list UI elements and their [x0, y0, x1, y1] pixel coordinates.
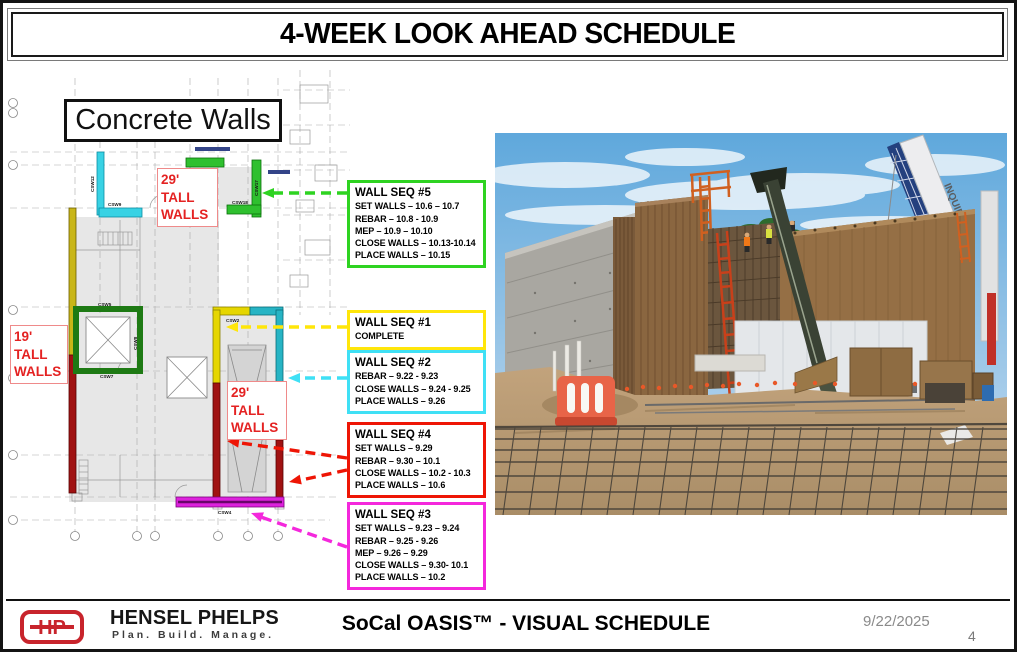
callout-line: CLOSE WALLS – 9.24 - 9.25	[355, 383, 479, 395]
wall-yellow-vert	[213, 310, 220, 383]
callout-line: REBAR – 9.22 - 9.23	[355, 370, 479, 382]
wall-mid-red	[213, 383, 220, 502]
callout-wall-seq-2: WALL SEQ #2 REBAR – 9.22 - 9.23CLOSE WAL…	[347, 350, 486, 414]
traffic-barrier	[555, 376, 617, 426]
callout-title: WALL SEQ #2	[355, 356, 479, 370]
callout-title: WALL SEQ #3	[355, 508, 479, 522]
wall-left-red	[69, 355, 76, 493]
callout-lines: REBAR – 9.22 - 9.23CLOSE WALLS – 9.24 - …	[355, 370, 479, 406]
arrow-seq2-head	[288, 373, 300, 383]
callout-line: SET WALLS – 9.29	[355, 442, 479, 454]
tag-csw4: CSW4	[218, 510, 232, 515]
callout-title: WALL SEQ #1	[355, 316, 479, 330]
callout-line: REBAR – 10.8 - 10.9	[355, 213, 479, 225]
callout-lines: SET WALLS – 9.23 – 9.24REBAR – 9.25 - 9.…	[355, 522, 479, 583]
page-number: 4	[968, 628, 976, 644]
company-tagline: Plan. Build. Manage.	[112, 629, 274, 641]
title-bar: 4-WEEK LOOK AHEAD SCHEDULE	[7, 8, 1008, 61]
arrow-seq5-head	[262, 188, 274, 198]
title-bar-inner: 4-WEEK LOOK AHEAD SCHEDULE	[11, 12, 1004, 57]
callout-wall-seq-5: WALL SEQ #5 SET WALLS – 10.6 – 10.7REBAR…	[347, 180, 486, 268]
callout-lines: SET WALLS – 10.6 – 10.7REBAR – 10.8 - 10…	[355, 200, 479, 261]
tag-csw7: CSW7	[100, 374, 114, 379]
slide-date: 9/22/2025	[863, 613, 930, 630]
wall-csw12	[97, 152, 104, 215]
plan-heading: Concrete Walls	[64, 99, 282, 142]
footer: HP HENSEL PHELPS Plan. Build. Manage. So…	[6, 599, 1010, 648]
callout-line: REBAR – 9.25 - 9.26	[355, 535, 479, 547]
callout-line: PLACE WALLS – 10.2	[355, 571, 479, 583]
label-29-tall-walls-mid: 29' TALL WALLS	[227, 381, 287, 440]
callout-line: SET WALLS – 10.6 – 10.7	[355, 200, 479, 212]
callout-wall-seq-1: WALL SEQ #1 COMPLETE	[347, 310, 486, 350]
arrow-seq4b	[297, 470, 347, 481]
callout-line: PLACE WALLS – 9.26	[355, 395, 479, 407]
slide-title: 4-WEEK LOOK AHEAD SCHEDULE	[280, 18, 735, 51]
callout-wall-seq-3: WALL SEQ #3 SET WALLS – 9.23 – 9.24REBAR…	[347, 502, 486, 590]
callout-lines: COMPLETE	[355, 330, 479, 342]
wall-csw13	[186, 158, 224, 167]
company-name: HENSEL PHELPS	[110, 607, 279, 630]
callout-lines: SET WALLS – 9.29REBAR – 9.30 – 10.1CLOSE…	[355, 442, 479, 491]
callout-line: CLOSE WALLS – 10.2 - 10.3	[355, 467, 479, 479]
tag-csw12: CSW12	[90, 176, 95, 192]
callout-title: WALL SEQ #4	[355, 428, 479, 442]
hensel-phelps-logo: HP	[20, 610, 84, 644]
project-title: SoCal OASIS™ - VISUAL SCHEDULE	[301, 612, 751, 636]
tag-csw5: CSW5	[98, 302, 112, 307]
callout-line: PLACE WALLS – 10.6	[355, 479, 479, 491]
tag-csw18: CSW18	[232, 200, 248, 205]
callout-line: CLOSE WALLS – 10.13-10.14	[355, 237, 479, 249]
tag-csw17: CSW17	[254, 180, 259, 196]
wall-csw18	[227, 205, 261, 214]
callout-line: PLACE WALLS – 10.15	[355, 249, 479, 261]
arrow-seq4b-head	[288, 475, 302, 487]
tag-csw9: CSW9	[108, 202, 122, 207]
callout-line: SET WALLS – 9.23 – 9.24	[355, 522, 479, 534]
callout-title: WALL SEQ #5	[355, 186, 479, 200]
callout-line: MEP – 9.26 – 9.29	[355, 547, 479, 559]
label-29-tall-walls-top: 29' TALL WALLS	[157, 168, 218, 227]
wall-csw9	[99, 208, 142, 217]
arrow-seq3	[258, 516, 347, 547]
callout-line: CLOSE WALLS – 9.30- 10.1	[355, 559, 479, 571]
callout-line: REBAR – 9.30 – 10.1	[355, 455, 479, 467]
tag-csw8: CSW8	[133, 336, 138, 350]
callout-line: MEP – 10.9 – 10.10	[355, 225, 479, 237]
callout-wall-seq-4: WALL SEQ #4 SET WALLS – 9.29REBAR – 9.30…	[347, 422, 486, 498]
callout-line: COMPLETE	[355, 330, 479, 342]
construction-photo: INQUIPCO	[495, 133, 1007, 515]
label-19-tall-walls: 19' TALL WALLS	[10, 325, 68, 384]
logo-monogram: HP	[38, 617, 66, 639]
